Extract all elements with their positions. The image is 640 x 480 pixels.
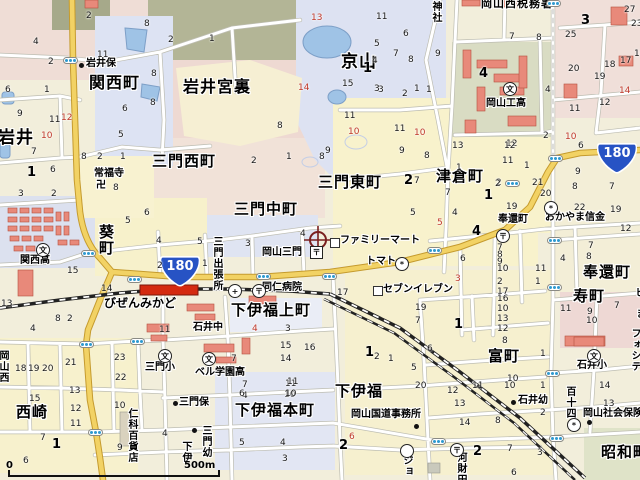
lot-number: 2: [51, 190, 57, 199]
lot-number: 8: [495, 417, 501, 426]
poi-label: 奉還町: [498, 215, 528, 225]
poi-label: 石井中: [193, 323, 223, 333]
poi-label: 三門小: [145, 363, 175, 373]
lot-number: 14: [599, 382, 610, 391]
lot-number: 7: [507, 445, 513, 454]
school-icon: 文: [158, 349, 172, 363]
lot-number: 11: [472, 382, 483, 391]
route-number: 180: [597, 146, 637, 161]
lot-number: 10: [285, 390, 296, 399]
post-office-icon: 〒: [450, 443, 464, 457]
area-label: 岩井: [0, 130, 34, 147]
lot-number: 9: [17, 110, 23, 119]
traffic-light-icon: [79, 341, 94, 348]
lot-number: 12: [447, 387, 458, 396]
lot-number: 6: [50, 166, 56, 175]
lot-number: 4: [479, 67, 488, 80]
poi-label: フォシテ: [629, 328, 639, 372]
lot-number: 12: [620, 225, 631, 234]
lot-number: 11: [394, 125, 405, 134]
area-label: 岡山西税務署: [481, 0, 553, 9]
lot-number: 13: [69, 387, 80, 396]
poi-label: トマト: [366, 257, 396, 267]
lot-number: 10: [504, 382, 515, 391]
school-icon: 文: [587, 349, 601, 363]
lot-number: 10: [497, 305, 508, 314]
lot-number: 23: [114, 354, 125, 363]
lot-number: 17: [620, 57, 631, 66]
lot-number: 4: [472, 225, 481, 238]
lot-number: 11: [49, 116, 60, 125]
lot-number: 20: [42, 365, 53, 374]
lot-number: 3: [455, 275, 461, 284]
lot-number: 1: [286, 153, 292, 162]
lot-number: 10: [586, 317, 597, 326]
lot-number: 13: [1, 300, 12, 309]
traffic-light-icon: [81, 250, 96, 257]
poi-label: 岡山西: [0, 350, 7, 383]
lot-number: 11: [159, 326, 170, 335]
lot-number: 14: [101, 285, 112, 294]
lot-number: 6: [460, 255, 466, 264]
lot-number: 11: [70, 420, 81, 429]
lot-number: 2: [67, 315, 73, 324]
lot-number: 8: [151, 70, 157, 79]
route-number: 180: [160, 259, 200, 274]
traffic-light-icon: [431, 438, 446, 445]
lot-number: 6: [578, 142, 584, 151]
lot-number: 22: [115, 374, 126, 383]
lot-number: 10: [41, 132, 52, 141]
lot-number: 12: [497, 325, 508, 334]
lot-number: 23: [631, 20, 640, 29]
lot-number: 25: [565, 31, 576, 40]
lot-number: 13: [311, 14, 322, 23]
lot-number: 20: [568, 65, 579, 74]
lot-number: 2: [48, 58, 54, 67]
poi-label: 岡山三門: [262, 248, 302, 258]
traffic-light-icon: [549, 435, 564, 442]
lot-number: 8: [55, 315, 61, 324]
poi-label: 岡山社会保険: [583, 409, 640, 419]
area-label: 西崎: [16, 405, 48, 420]
lot-number: 1: [52, 438, 61, 451]
school-icon: 文: [36, 243, 50, 257]
lot-number: 14: [619, 87, 630, 96]
poi-label: 仁科百貨店: [126, 408, 136, 463]
area-label: 関西町: [89, 75, 140, 91]
lot-number: 7: [614, 302, 620, 311]
lot-number: 9: [117, 444, 123, 453]
route-badge: 180: [160, 256, 200, 288]
lot-number: 1: [365, 346, 374, 359]
lot-number: 13: [603, 400, 614, 409]
lot-number: 12: [599, 99, 610, 108]
school-icon: 文: [503, 82, 517, 96]
lot-number: 14: [298, 84, 309, 93]
lot-number: 6: [239, 390, 245, 399]
lot-number: 18: [15, 365, 26, 374]
lot-number: 2: [97, 153, 103, 162]
lot-number: 17: [337, 289, 348, 298]
traffic-light-icon: [545, 370, 560, 377]
lot-number: 22: [574, 204, 585, 213]
generic-circle-icon: [400, 444, 414, 458]
route-badge: 180: [597, 143, 637, 175]
lot-number: 6: [427, 345, 433, 354]
lot-number: 21: [65, 359, 76, 368]
post-mark-icon: 〒: [310, 246, 323, 259]
lot-number: 3: [537, 449, 543, 458]
lot-number: 1: [456, 164, 462, 173]
lot-number: 8: [150, 99, 156, 108]
lot-number: 19: [415, 304, 426, 313]
lot-number: 4: [300, 230, 306, 239]
lot-number: 3: [282, 455, 288, 464]
poi-label: ベル学園高: [195, 368, 245, 378]
poi-label: ビ: [633, 287, 640, 298]
lot-number: 13: [497, 315, 508, 324]
lot-number: 15: [67, 267, 78, 276]
poi-label: 関西高: [20, 256, 50, 266]
lot-number: 2: [251, 157, 257, 166]
lot-number: 15: [342, 80, 353, 89]
area-label: 葵町: [98, 224, 113, 256]
lot-number: 10: [497, 265, 508, 274]
lot-number: 1: [524, 162, 530, 171]
traffic-light-icon: [63, 57, 78, 64]
school-icon: 文: [202, 352, 216, 366]
poi-label: セブンイレブン: [383, 285, 453, 295]
area-label: 三門西町: [152, 154, 216, 169]
lot-number: 2: [540, 409, 546, 418]
traffic-light-icon: [546, 0, 561, 7]
poi-dot-icon: [414, 424, 419, 429]
traffic-light-icon: [322, 273, 337, 280]
lot-number: 6: [144, 209, 150, 218]
lot-number: 11: [376, 13, 387, 22]
lot-number: 11: [287, 378, 298, 387]
lot-number: 4: [162, 430, 168, 439]
lot-number: 1: [535, 278, 541, 287]
lot-number: 5: [125, 217, 131, 226]
poi-label: ジョ: [401, 455, 411, 477]
lot-number: 21: [532, 179, 543, 188]
lot-number: 3: [245, 240, 251, 249]
lot-number: 2: [473, 445, 482, 458]
poi-label: ま: [634, 308, 640, 319]
lot-number: 9: [575, 168, 581, 177]
lot-number: 14: [459, 419, 470, 428]
lot-number: 3: [18, 190, 24, 199]
area-label: 昭和町: [601, 445, 640, 460]
lot-number: 1: [484, 189, 493, 202]
lot-number: 5: [118, 131, 124, 140]
lot-number: 7: [31, 148, 37, 157]
lot-number: 10: [114, 402, 125, 411]
area-label: 寿町: [573, 289, 605, 304]
lot-number: 8: [113, 184, 119, 193]
poi-label: 三門保: [179, 398, 209, 408]
lot-number: 18: [604, 61, 615, 70]
poi-label: 岡山国道事務所: [351, 410, 421, 420]
lot-number: 5: [374, 40, 380, 49]
lot-number: 1: [414, 85, 420, 94]
lot-number: 19: [610, 206, 621, 215]
area-label: 下伊福上町: [231, 303, 311, 318]
lot-number: 7: [40, 434, 46, 443]
bank-icon: *: [567, 418, 581, 432]
lot-number: 7: [588, 242, 594, 251]
poi-dot-icon: [511, 400, 516, 405]
lot-number: 5: [411, 364, 417, 373]
lot-number: 11: [569, 105, 580, 114]
lot-number: 10: [414, 129, 425, 138]
post-office-icon: 〒: [496, 229, 510, 243]
poi-dot-icon: [192, 428, 197, 433]
poi-label: びぜんみかど: [104, 297, 176, 309]
lot-number: 8: [586, 253, 592, 262]
lot-number: 4: [372, 57, 378, 66]
poi-label: 三門出張所: [211, 236, 221, 291]
poi-label: 岡山工高: [486, 99, 526, 109]
lot-number: 12: [61, 114, 72, 123]
lot-number: 4: [280, 439, 286, 448]
post-office-icon: 〒: [252, 284, 266, 298]
lot-number: 10: [565, 133, 576, 142]
lot-number: 12: [504, 142, 515, 151]
poi-label: 卍: [96, 181, 106, 191]
lot-number: 1: [540, 350, 546, 359]
lot-number: 7: [445, 189, 451, 198]
scale-end-label: 500m: [184, 460, 215, 471]
bank-icon: *: [544, 201, 558, 215]
lot-number: 8: [408, 56, 414, 65]
traffic-light-icon: [548, 155, 563, 162]
bank-icon: *: [395, 257, 409, 271]
lot-number: 20: [415, 382, 426, 391]
lot-number: 4: [156, 237, 162, 246]
poi-label: おかやま信金: [545, 213, 605, 223]
area-label: 三門中町: [234, 202, 298, 217]
lot-number: 4: [30, 325, 36, 334]
lot-number: 7: [393, 50, 399, 59]
lot-number: 2: [543, 132, 549, 141]
lot-number: 2: [157, 262, 163, 271]
lot-number: 5: [437, 219, 443, 228]
traffic-light-icon: [256, 273, 271, 280]
lot-number: 1: [44, 86, 50, 95]
lot-number: 6: [511, 469, 517, 478]
lot-number: 7: [415, 317, 421, 326]
lot-number: 11: [344, 112, 355, 121]
lot-number: 2: [402, 90, 408, 99]
lot-number: 4: [452, 209, 458, 218]
lot-number: 9: [325, 147, 331, 156]
lot-number: 8: [81, 153, 87, 162]
lot-number: 8: [319, 153, 325, 162]
scale-bar: 0 500m: [6, 460, 236, 479]
lot-number: 2: [495, 180, 501, 189]
hospital-icon: +: [228, 284, 242, 298]
lot-number: 16: [634, 50, 640, 59]
map-canvas[interactable]: 180 180 京山岩井宮裏関西町岩井三門西町三門中町三門東町津倉町葵町下伊福上…: [0, 0, 640, 480]
lot-number: 16: [304, 344, 315, 353]
lot-number: 11: [97, 51, 108, 60]
poi-dot-icon: [173, 401, 178, 406]
lot-number: 7: [414, 177, 420, 186]
poi-label: 常福寺: [94, 169, 124, 179]
poi-label: ファミリーマート: [340, 236, 420, 246]
lot-number: 7: [231, 355, 237, 364]
traffic-light-icon: [127, 276, 142, 283]
lot-number: 16: [497, 295, 508, 304]
lot-number: 8: [572, 183, 578, 192]
lot-number: 13: [452, 142, 463, 151]
lot-number: 14: [280, 355, 291, 364]
lot-number: 4: [545, 86, 551, 95]
lot-number: 6: [349, 433, 355, 442]
lot-number: 19: [28, 365, 39, 374]
lot-number: 1: [27, 166, 36, 179]
lot-number: 5: [197, 238, 203, 247]
traffic-light-icon: [88, 429, 103, 436]
lot-number: 3: [374, 85, 380, 94]
lot-number: 5: [239, 439, 245, 448]
lot-number: 7: [509, 33, 515, 42]
lot-number: 1: [363, 62, 372, 75]
traffic-light-icon: [130, 338, 145, 345]
lot-number: 4: [33, 38, 39, 47]
lot-number: 7: [609, 183, 615, 192]
lot-number: 27: [624, 6, 635, 15]
poi-label: 岩井保: [86, 59, 116, 69]
lot-number: 6: [122, 105, 128, 114]
poi-dot-icon: [79, 63, 84, 68]
poi-label: 三門幼: [200, 425, 210, 458]
lot-number: 1: [202, 260, 208, 269]
lot-number: 1: [120, 153, 126, 162]
area-label: 岩井宮裏: [183, 79, 251, 95]
lot-number: 2: [404, 174, 413, 187]
lot-number: 15: [29, 395, 40, 404]
lot-number: 5: [410, 209, 416, 218]
area-label: 富町: [488, 349, 520, 364]
area-label: 三門東町: [318, 175, 382, 190]
lot-number: 6: [403, 30, 409, 39]
lot-number: 4: [252, 325, 258, 334]
lot-number: 9: [399, 147, 405, 156]
lot-number: 1: [426, 86, 432, 95]
lot-number: 8: [277, 122, 283, 131]
lot-number: 11: [535, 265, 546, 274]
poi-label: 神社: [430, 1, 440, 23]
lot-number: 8: [424, 152, 430, 161]
traffic-light-icon: [547, 284, 562, 291]
store-icon: [330, 238, 340, 248]
lot-number: 2: [374, 353, 380, 362]
lot-number: 19: [594, 73, 605, 82]
lot-number: 19: [506, 203, 517, 212]
lot-number: 10: [348, 128, 359, 137]
area-label: 下伊福本町: [235, 403, 315, 418]
lot-number: 2: [168, 36, 174, 45]
lot-number: 12: [70, 405, 81, 414]
poi-label: 同仁病院: [262, 283, 302, 293]
lot-number: 1: [540, 382, 546, 391]
lot-number: 8: [536, 34, 542, 43]
traffic-light-icon: [505, 180, 520, 187]
lot-number: 20: [540, 190, 551, 199]
lot-number: 2: [339, 439, 348, 452]
lot-number: 1: [454, 318, 463, 331]
lot-number: 9: [435, 50, 441, 59]
lot-number: 1: [388, 355, 394, 364]
poi-label: 石井幼: [518, 396, 548, 406]
traffic-light-icon: [547, 237, 562, 244]
lot-number: 8: [502, 337, 508, 346]
lot-number: 11: [502, 157, 513, 166]
lot-number: 1: [209, 35, 215, 44]
lot-number: 2: [497, 278, 503, 287]
lot-number: 2: [86, 12, 92, 21]
lot-number: 11: [560, 305, 571, 314]
poi-label: 百十四: [564, 386, 574, 419]
lot-number: 3: [285, 325, 291, 334]
lot-number: 6: [5, 86, 11, 95]
poi-dot-icon: [587, 420, 592, 425]
area-label: 奉還町: [583, 265, 631, 280]
lot-number: 13: [454, 400, 465, 409]
lot-number: 3: [581, 14, 590, 27]
traffic-light-icon: [427, 247, 442, 254]
lot-number: 15: [280, 342, 291, 351]
area-label: 下伊福: [335, 384, 383, 399]
lot-number: 4: [560, 255, 566, 264]
store-icon: [373, 286, 383, 296]
lot-number: 8: [144, 20, 150, 29]
